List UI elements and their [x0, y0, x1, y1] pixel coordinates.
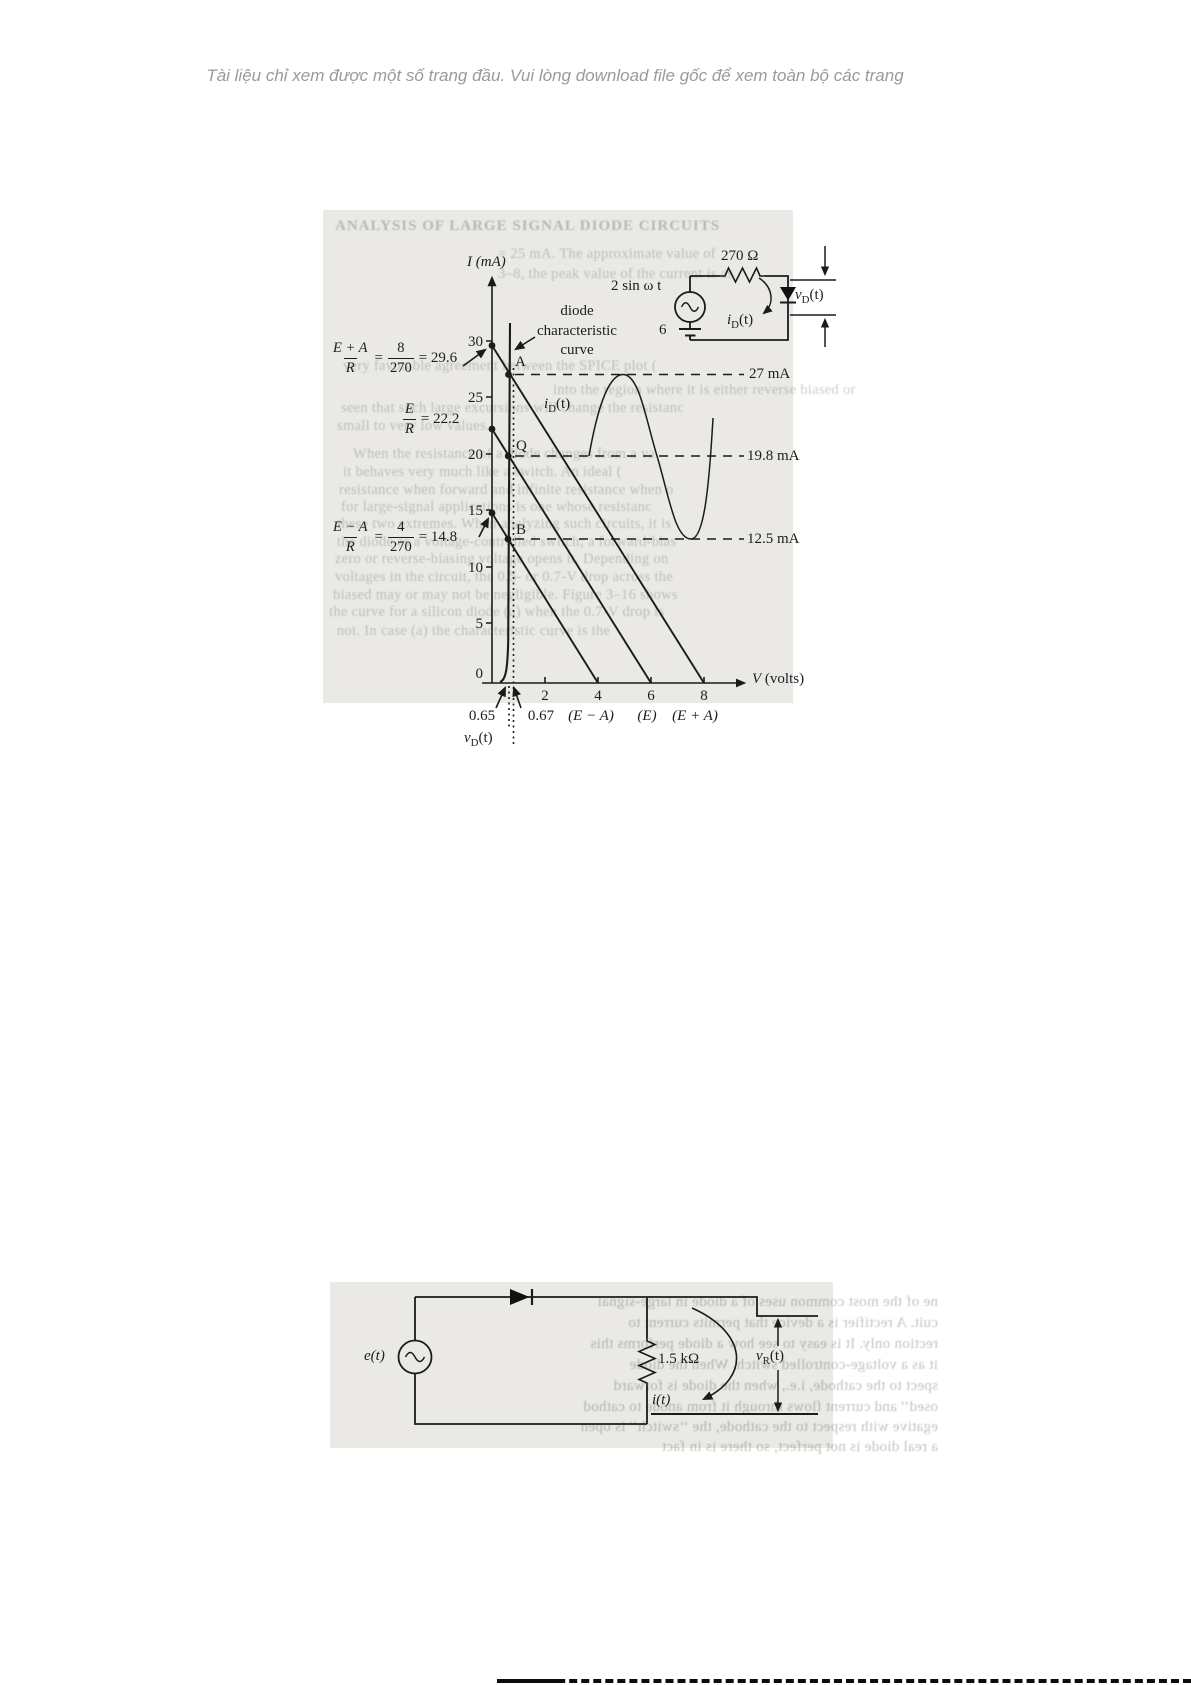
figure-rectifier-circuit: ne of the most common uses of a diode in… [330, 1256, 945, 1452]
knee-0.65: 0.65 [461, 708, 503, 725]
diode-current-label: iD(t) [727, 312, 753, 331]
load-line-E [492, 429, 651, 683]
point-B-label: B [516, 522, 526, 539]
intercept-dot-29.6 [489, 342, 496, 349]
loop-current-label: i(t) [652, 1392, 670, 1409]
battery-value-label: 6 [659, 322, 667, 339]
resistor-value-label: 1.5 kΩ [658, 1351, 699, 1368]
sine-glyph [682, 303, 699, 312]
x-axis-ticks [545, 677, 704, 683]
equation-E: ER = 22.2 [403, 402, 459, 436]
x-tick-6: 6 [643, 688, 659, 705]
y-tick-5: 5 [461, 616, 483, 633]
load-line-E-plus-A [492, 346, 704, 684]
rectifier-circuit-drawing [330, 1256, 945, 1452]
diode-symbol [780, 287, 796, 301]
y-tick-25: 25 [461, 390, 483, 407]
intercept-E-minus-A: (E − A) [560, 708, 622, 725]
ac-source-label: 2 sin ω t [611, 278, 661, 295]
point-A-dot [505, 371, 512, 378]
x-tick-8: 8 [696, 688, 712, 705]
equation-E-minus-A: E − AR = 4270 = 14.8 [331, 520, 457, 554]
sine-glyph [406, 1353, 425, 1362]
current-arc [759, 278, 771, 313]
y-tick-0: 0 [461, 666, 483, 683]
arrow-0.65 [496, 688, 505, 708]
point-A-label: A [515, 354, 526, 371]
vd-axis-label: vD(t) [464, 730, 493, 749]
intercept-dot-14.8 [489, 510, 496, 517]
arrow-14.8 [479, 519, 488, 537]
waveform-label: iD(t) [544, 396, 570, 415]
intercept-dot-22.2 [489, 426, 496, 433]
y-axis-ticks [486, 341, 492, 623]
point-Q-label: Q [516, 438, 527, 455]
knee-0.67: 0.67 [520, 708, 562, 725]
figure-load-line-analysis: ANALYSIS OF LARGE SIGNAL DIODE CIRCUITS … [323, 210, 945, 755]
point-Q-dot [505, 453, 512, 460]
diode-voltage-label: vD(t) [795, 287, 824, 306]
x-axis-label: V V (volts)(volts) [752, 671, 804, 688]
x-tick-4: 4 [590, 688, 606, 705]
y-tick-15: 15 [461, 503, 483, 520]
scan-artifact-solid-segment [497, 1679, 559, 1683]
preview-notice: Tài liệu chỉ xem được một số trang đầu. … [0, 66, 1110, 86]
equation-E-plus-A: E + AR = 8270 = 29.6 [331, 341, 457, 375]
y-tick-10: 10 [461, 560, 483, 577]
resistor-zigzag [720, 268, 765, 282]
dash-label-27mA: 27 mA [749, 366, 790, 383]
diode-symbol [510, 1289, 530, 1305]
arrow-29.6 [463, 350, 485, 366]
y-axis-label: I (mA) [467, 254, 506, 271]
resistor-zigzag [639, 1338, 655, 1386]
curve-callout: diode characteristic curve [521, 302, 633, 361]
arrow-0.67 [514, 688, 521, 708]
x-tick-2: 2 [537, 688, 553, 705]
battery [679, 329, 701, 340]
output-voltage-label: vR(t) [756, 1348, 784, 1367]
dash-label-12.5mA: 12.5 mA [747, 531, 800, 548]
intercept-E-plus-A: (E + A) [664, 708, 726, 725]
scan-artifact-dashed-line [497, 1679, 1191, 1683]
y-tick-30: 30 [461, 334, 483, 351]
dash-label-19.8mA: 19.8 mA [747, 448, 800, 465]
resistor-value-label: 270 Ω [721, 248, 758, 265]
y-tick-20: 20 [461, 447, 483, 464]
scanned-document-page: Tài liệu chỉ xem được một số trang đầu. … [0, 0, 1191, 1685]
source-label: e(t) [364, 1348, 385, 1365]
point-B-dot [505, 536, 512, 543]
